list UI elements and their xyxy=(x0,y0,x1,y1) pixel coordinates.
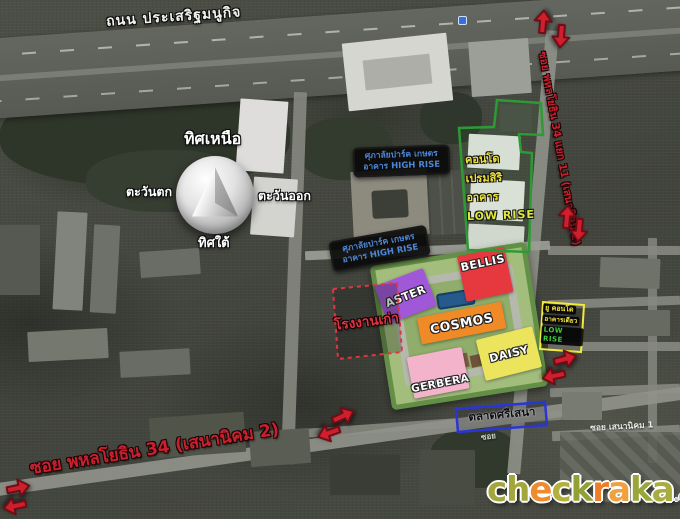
building xyxy=(27,328,108,362)
building xyxy=(500,105,532,131)
block-gerbera-label: GERBERA xyxy=(410,372,470,395)
block-gerbera[interactable]: GERBERA xyxy=(407,347,470,399)
roof-detail xyxy=(363,54,433,91)
premsiri-line4: LOW RISE xyxy=(467,205,536,226)
block-daisy-label: DAISY xyxy=(488,342,530,364)
building xyxy=(139,248,201,278)
compass-east-label: ตะวันออก xyxy=(258,186,311,206)
courtyard xyxy=(371,189,409,219)
ucondo-line1: ยู คอนโด xyxy=(543,304,576,315)
ucondo-line3: LOW RISE xyxy=(541,326,584,347)
building xyxy=(52,211,87,310)
highway-median xyxy=(0,26,680,82)
checkraka-watermark[interactable]: checkraka.com xyxy=(487,470,680,510)
building xyxy=(600,310,670,336)
building xyxy=(330,455,400,495)
supalai-label-line2: อาคาร HIGH RISE xyxy=(355,159,448,173)
supalai-highrise-label-1: ศุภาลัยปาร์ค เกษตร อาคาร HIGH RISE xyxy=(353,144,451,177)
building xyxy=(342,33,454,112)
block-bellis-label: BELLIS xyxy=(460,252,507,274)
compass-rose xyxy=(176,156,254,234)
road-label-soi: ซอย xyxy=(480,429,497,444)
ucondo-label: ยู คอนโด อาคารเดียว LOW RISE xyxy=(541,303,586,348)
building xyxy=(468,38,532,97)
side-street xyxy=(548,246,680,255)
watermark-text: checkraka xyxy=(487,486,674,505)
building xyxy=(599,257,660,289)
watermark-suffix: .com xyxy=(674,487,680,505)
compass-south-label: ทิศใต้ xyxy=(198,232,230,253)
building xyxy=(90,224,121,313)
ucondo-line2: อาคารเดียว xyxy=(542,315,579,327)
compass-north-label: ทิศเหนือ xyxy=(184,127,241,152)
building xyxy=(0,225,40,295)
building xyxy=(420,450,475,505)
block-aster-label: ASTER xyxy=(384,282,428,309)
building xyxy=(119,348,190,378)
building xyxy=(562,392,602,420)
motorway-shield-icon xyxy=(458,16,467,25)
block-bellis[interactable]: BELLIS xyxy=(457,247,514,302)
premsiri-line3: อาคาร xyxy=(466,186,535,207)
premsiri-line2: เปรมสิริ xyxy=(465,167,534,188)
premsiri-condo-label: คอนโด เปรมสิริ อาคาร LOW RISE xyxy=(465,148,536,226)
premsiri-line1: คอนโด xyxy=(465,148,534,169)
compass-west-label: ตะวันตก xyxy=(126,182,172,202)
satellite-location-map: ASTER BELLIS COSMOS GERBERA DAISY ทิศเหน… xyxy=(0,0,680,519)
